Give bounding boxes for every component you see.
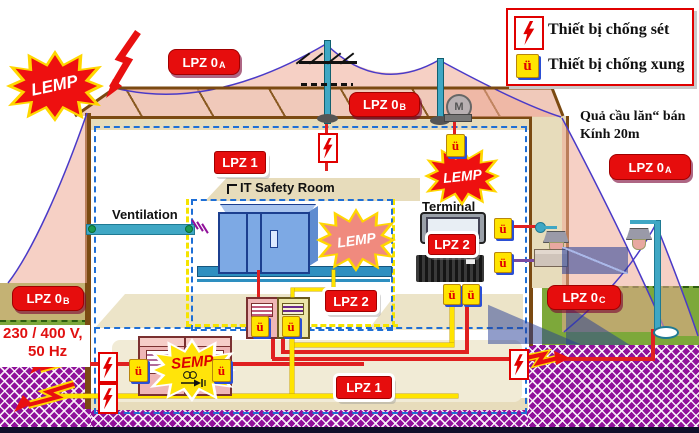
surge-arrester-icon: ü <box>212 359 231 382</box>
lamp1-arm <box>541 226 557 229</box>
lpz1-badge: LPZ 1 <box>336 376 392 399</box>
surge-arrester-icon: ü <box>443 284 461 305</box>
lightning-arrester-icon <box>318 133 338 163</box>
motor-label: M <box>454 101 463 113</box>
lpz0a-badge: LPZ 0A <box>168 49 240 75</box>
air-terminal-mast <box>437 58 444 124</box>
server-yellow-feed <box>332 270 335 290</box>
lpz0a-badge: LPZ 0A <box>609 154 691 180</box>
lamp2-pole <box>654 220 661 332</box>
legend-item-label: Thiết bị chống xung <box>548 56 684 74</box>
signal-wire-run <box>281 350 469 354</box>
lpz2-badge: LPZ 2 <box>428 234 476 255</box>
mast-base <box>317 114 338 123</box>
yellow-cabinet-leg <box>290 335 294 397</box>
bottom-bar <box>0 427 699 433</box>
lpz0c-badge: LPZ 0C <box>547 285 621 310</box>
lamp1-wire <box>511 225 537 228</box>
pipe-joint <box>88 225 96 233</box>
it-room-bracket <box>227 184 237 194</box>
ventilation-label: Ventilation <box>112 207 178 222</box>
supply-voltage-box: 230 / 400 V, 50 Hz <box>0 325 90 367</box>
server-rack <box>218 212 310 274</box>
drive-slot <box>466 259 475 264</box>
power-wire-main <box>229 362 364 366</box>
lamp2-arm <box>630 220 656 224</box>
surge-arrester-icon: ü <box>282 316 300 337</box>
surge-arrester-icon: ü <box>462 284 480 305</box>
lightning-arrester-icon <box>514 16 544 50</box>
lpz2-badge: LPZ 2 <box>325 290 377 312</box>
raised-floor-line <box>197 279 390 282</box>
transformer-symbol-icon <box>175 371 209 387</box>
lightning-arrester-icon <box>98 383 118 414</box>
legend-item-label: Thiết bị chống sét <box>548 21 669 39</box>
semp-label: SEMP <box>170 352 214 373</box>
surge-bolt-icon <box>14 378 80 412</box>
cabinet-panel <box>282 303 304 315</box>
it-room-label: IT Safety Room <box>240 180 335 195</box>
surge-bolt-icon <box>524 348 570 374</box>
server-yellow-feed-v <box>291 288 294 297</box>
surge-arrester-icon: ü <box>129 359 148 382</box>
cabinet-panel <box>251 303 273 317</box>
ground-electrode <box>653 326 679 339</box>
lpz1-badge: LPZ 1 <box>214 151 266 174</box>
rolling-sphere-note: Quả cầu lăn“ bán Kính 20m <box>580 108 698 144</box>
surge-arrester-icon: ü <box>494 218 512 239</box>
lamp2-bulb <box>632 239 646 250</box>
rack-door-handle <box>270 230 278 248</box>
legend: Thiết bị chống sét ü Thiết bị chống xung <box>506 8 694 86</box>
surge-arrester-icon: ü <box>446 134 465 157</box>
lightning-strike-icon <box>98 28 144 100</box>
surge-arrester-icon: ü <box>251 316 269 337</box>
roof-mesh <box>70 86 568 118</box>
induction-zone-box <box>562 247 628 274</box>
lightning-protection-diagram: Ventilation IT Safety Room LEMP SEMP <box>0 0 699 433</box>
ventilation-pipe <box>86 224 195 235</box>
pipe-joint <box>185 225 193 233</box>
voltage-line1: 230 / 400 V, <box>0 325 90 343</box>
lightning-arrester-icon <box>509 349 529 380</box>
lpz0b-badge: LPZ 0B <box>12 286 84 311</box>
rack-divider <box>246 214 248 272</box>
motor-base <box>444 114 472 122</box>
yellow-wire-run <box>290 343 454 347</box>
rolling-sphere-line1: Quả cầu lăn“ bán <box>580 108 698 126</box>
surge-arrester-icon: ü <box>516 54 539 78</box>
rack-divider <box>260 214 262 272</box>
antenna-mast <box>324 40 331 124</box>
surge-arrester-icon: ü <box>494 252 512 273</box>
lightning-arrester-icon <box>98 352 118 383</box>
power-wire-run <box>272 357 510 361</box>
lpz0b-badge: LPZ 0B <box>349 92 420 117</box>
voltage-line2: 50 Hz <box>0 343 90 361</box>
rolling-sphere-line2: Kính 20m <box>580 126 698 144</box>
antenna-bar-dashed-icon <box>301 83 353 86</box>
keyboard-unit <box>416 255 484 282</box>
server-red-feed <box>257 270 260 297</box>
